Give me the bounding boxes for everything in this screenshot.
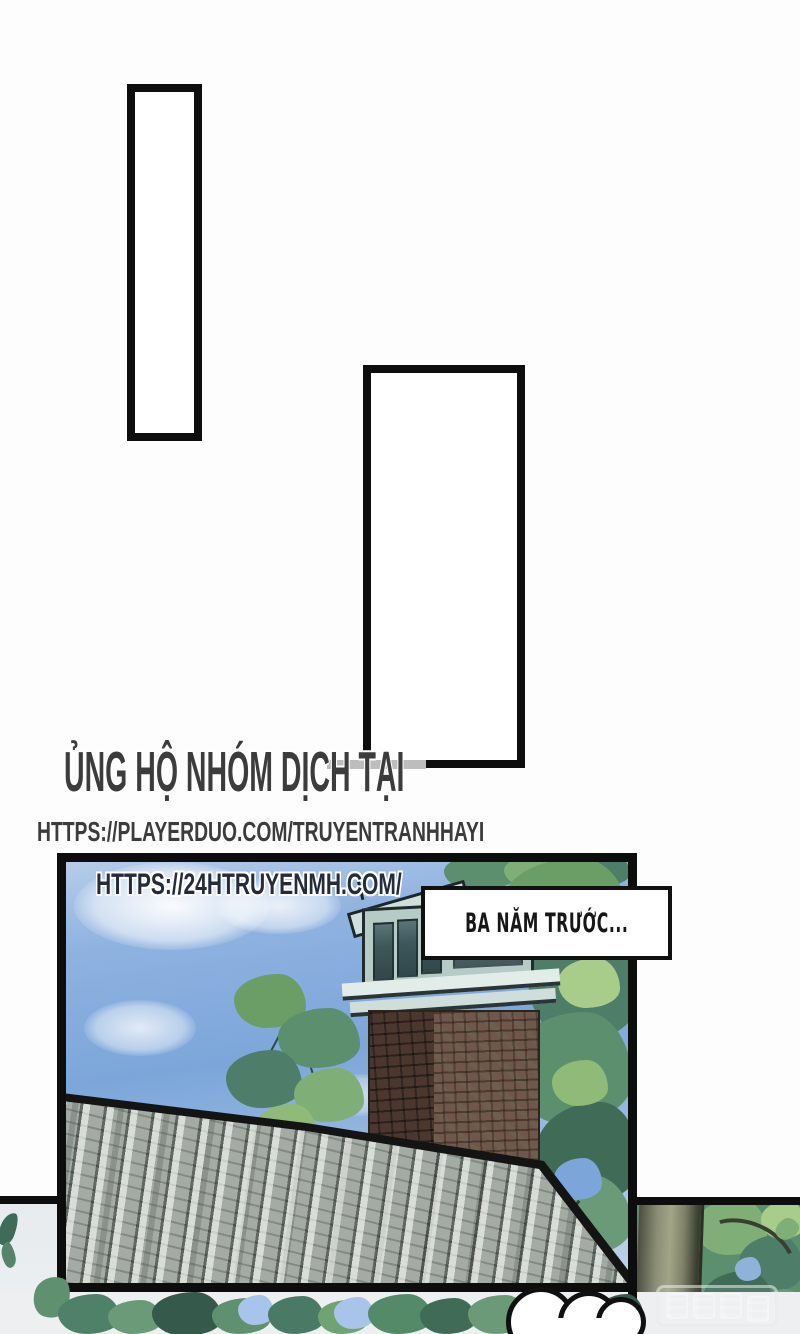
publisher-watermark (656, 1285, 778, 1327)
cloud-3 (84, 1000, 196, 1056)
cab-window (373, 922, 394, 981)
watermark-glyph (666, 1293, 688, 1319)
speech-bubble-2 (363, 365, 525, 768)
lower-right-panel-border (628, 1197, 800, 1205)
watermark-glyph (747, 1296, 769, 1322)
watermark-glyph (720, 1293, 742, 1319)
site-watermark-text: HTTPS://24HTRUYENMH.COM/ (96, 870, 402, 900)
comic-page: ỦNG HỘ NHÓM DỊCH TẠI HTTPS://PLAYERDUO.C… (0, 0, 800, 1334)
lower-left-panel-border (0, 1196, 57, 1204)
leaf (558, 958, 620, 1008)
watermark-glyph (693, 1293, 715, 1319)
speech-bubble-1 (127, 84, 202, 441)
leaf (226, 1050, 302, 1108)
caption-box: BA NĂM TRƯỚC... (421, 886, 672, 960)
cloud-bubble (518, 1318, 634, 1334)
leaf (552, 1060, 608, 1106)
support-url-line: HTTPS://PLAYERDUO.COM/TRUYENTRANHHAYI (37, 818, 484, 846)
support-title: ỦNG HỘ NHÓM DỊCH TẠI (64, 744, 404, 801)
cab-window (397, 919, 418, 978)
caption-text: BA NĂM TRƯỚC... (465, 908, 628, 939)
leaf (268, 1296, 324, 1334)
